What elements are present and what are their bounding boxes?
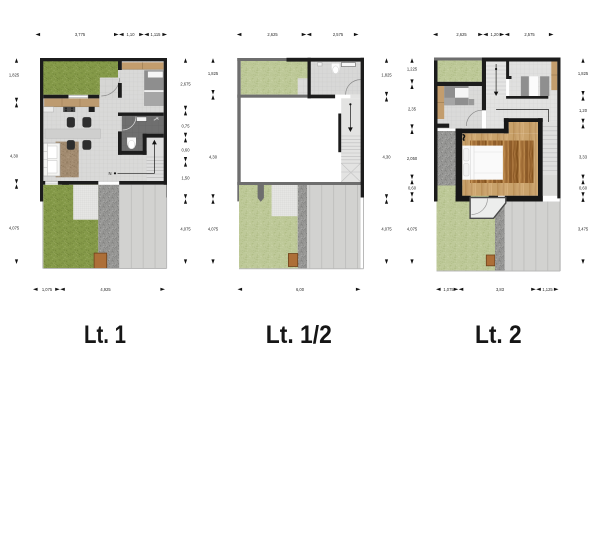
svg-text:0,60: 0,60 <box>182 148 191 153</box>
svg-text:6,00: 6,00 <box>296 287 305 292</box>
svg-text:2,35: 2,35 <box>408 106 417 111</box>
svg-text:1,825: 1,825 <box>208 71 219 76</box>
svg-text:2,575: 2,575 <box>333 32 344 37</box>
svg-text:4,30: 4,30 <box>209 155 218 160</box>
svg-text:4,30: 4,30 <box>383 155 392 160</box>
svg-text:3,775: 3,775 <box>75 32 86 37</box>
svg-text:2,575: 2,575 <box>524 32 535 37</box>
svg-text:1,20: 1,20 <box>491 32 500 37</box>
svg-text:4,075: 4,075 <box>381 227 392 232</box>
svg-text:3,83: 3,83 <box>496 287 505 292</box>
svg-text:4,075: 4,075 <box>208 227 219 232</box>
svg-text:1,075: 1,075 <box>42 287 53 292</box>
svg-text:1,825: 1,825 <box>381 72 392 77</box>
svg-text:Lt. 1/2: Lt. 1/2 <box>266 321 332 349</box>
svg-text:1,125: 1,125 <box>542 287 553 292</box>
svg-text:4,925: 4,925 <box>100 287 111 292</box>
svg-text:3,33: 3,33 <box>579 155 588 160</box>
svg-text:4,075: 4,075 <box>180 227 191 232</box>
svg-text:4,075: 4,075 <box>9 226 20 231</box>
svg-text:1,825: 1,825 <box>578 71 589 76</box>
svg-text:2,625: 2,625 <box>267 32 278 37</box>
svg-text:3,475: 3,475 <box>578 227 589 232</box>
svg-text:0,75: 0,75 <box>182 124 191 129</box>
svg-text:1,225: 1,225 <box>407 66 418 71</box>
svg-text:0,60: 0,60 <box>408 185 417 190</box>
svg-text:1,115: 1,115 <box>151 32 162 37</box>
svg-text:0,60: 0,60 <box>579 185 588 190</box>
svg-text:2,675: 2,675 <box>180 82 191 87</box>
svg-text:Lt. 2: Lt. 2 <box>475 321 522 349</box>
svg-text:1,825: 1,825 <box>9 72 20 77</box>
svg-text:N: N <box>109 171 112 176</box>
svg-text:1,50: 1,50 <box>182 176 191 181</box>
svg-text:1,20: 1,20 <box>579 108 588 113</box>
svg-text:Lt. 1: Lt. 1 <box>84 321 126 349</box>
svg-text:1,10: 1,10 <box>127 32 136 37</box>
svg-text:1,075: 1,075 <box>443 287 454 292</box>
svg-text:4,075: 4,075 <box>407 227 418 232</box>
svg-text:4,30: 4,30 <box>10 154 19 159</box>
svg-text:2,625: 2,625 <box>456 32 467 37</box>
svg-text:2,050: 2,050 <box>407 156 418 161</box>
